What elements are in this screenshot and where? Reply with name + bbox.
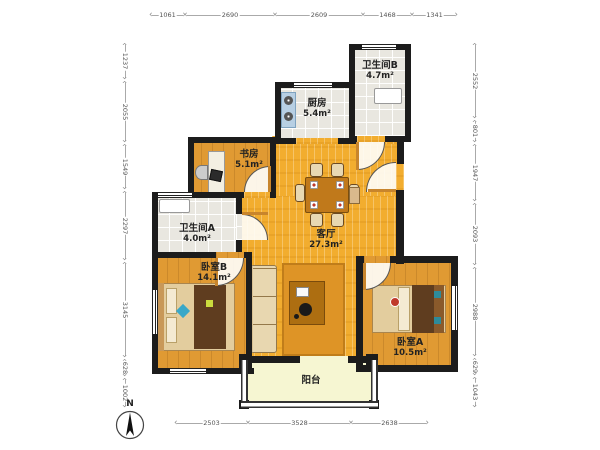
sofa xyxy=(248,265,277,353)
plate xyxy=(310,181,318,189)
window xyxy=(158,192,192,198)
window xyxy=(451,286,458,330)
wall-segment xyxy=(188,137,276,143)
decor-item xyxy=(390,297,400,307)
dim-label: 629 xyxy=(471,359,479,373)
dim-label: 1043 xyxy=(471,383,479,402)
headboard xyxy=(157,283,164,351)
cushion xyxy=(206,300,213,307)
dining-chair xyxy=(310,163,323,177)
dim-label: 2055 xyxy=(121,102,129,121)
sink xyxy=(374,88,402,104)
window xyxy=(362,44,396,50)
room-label-living-room: 客厅27.3m² xyxy=(291,229,361,251)
dim-label: 2297 xyxy=(121,216,129,235)
wall-segment xyxy=(188,137,194,198)
dim-label: 1947 xyxy=(471,163,479,182)
room-label-bedroom-a: 卧室A10.5m² xyxy=(375,337,445,359)
dim-label: 2503 xyxy=(202,419,221,427)
door-leaf xyxy=(363,263,366,290)
window xyxy=(170,368,206,374)
north-label: N xyxy=(112,399,148,409)
room-label-bathroom-b: 卫生间B4.7m² xyxy=(345,60,415,82)
kettle-small xyxy=(294,314,299,319)
door-opening xyxy=(364,256,390,263)
dim-label: 2093 xyxy=(471,225,479,244)
wall-segment xyxy=(405,44,411,142)
dim-label: 628 xyxy=(121,360,129,374)
door-leaf xyxy=(242,212,268,215)
wall-segment xyxy=(152,192,158,374)
room-label-study: 书房5.1m² xyxy=(214,149,284,171)
north-compass: N xyxy=(112,399,148,449)
door-opening xyxy=(244,192,270,198)
balcony-window xyxy=(371,360,378,406)
door-leaf xyxy=(368,189,396,192)
dim-label: 2638 xyxy=(380,419,399,427)
balcony-window xyxy=(241,401,378,408)
wall-segment xyxy=(356,256,363,372)
compass-icon xyxy=(114,409,146,441)
tray xyxy=(296,287,309,297)
dim-label: 2609 xyxy=(310,11,329,19)
dim-label: 1549 xyxy=(121,157,129,176)
pillow-accent xyxy=(434,291,441,298)
entry-cabinet xyxy=(349,187,360,204)
room-label-bedroom-b: 卧室B14.1m² xyxy=(179,262,249,284)
desk-chair xyxy=(195,165,208,180)
kettle xyxy=(299,303,312,316)
door-leaf xyxy=(356,142,359,170)
plate xyxy=(336,201,344,209)
wall-segment xyxy=(268,137,281,143)
floor-plan: 1061 2690 2609 1468 1341 2503 3528 2638 … xyxy=(0,0,600,450)
dim-label: 2690 xyxy=(221,11,240,19)
dining-chair xyxy=(331,213,344,227)
door-opening xyxy=(296,138,338,144)
dining-chair xyxy=(295,184,305,202)
dining-chair xyxy=(331,163,344,177)
dim-label: 801 xyxy=(471,124,479,138)
sink xyxy=(159,199,190,213)
blanket xyxy=(194,285,226,349)
dim-label: 3528 xyxy=(290,419,309,427)
room-label-bathroom-a: 卫生间A4.0m² xyxy=(162,223,232,245)
window xyxy=(294,82,332,88)
room-label-balcony: 阳台 xyxy=(276,375,346,386)
monitor xyxy=(209,169,223,182)
wall-segment xyxy=(396,190,404,264)
door-opening xyxy=(396,164,404,190)
plate xyxy=(336,181,344,189)
window xyxy=(152,290,158,334)
room-label-kitchen: 厨房5.4m² xyxy=(282,98,352,120)
wall-segment xyxy=(275,82,281,144)
pillow-accent xyxy=(434,317,441,324)
wall-segment xyxy=(349,44,355,142)
pillow xyxy=(398,287,410,331)
dim-label: 2988 xyxy=(471,302,479,321)
balcony-window xyxy=(241,360,248,406)
pillow xyxy=(166,317,177,343)
wall-segment xyxy=(397,142,404,166)
dim-label: 1468 xyxy=(378,11,397,19)
blanket xyxy=(412,285,434,333)
dim-label: 2552 xyxy=(471,71,479,90)
dim-label: 1237 xyxy=(121,52,129,71)
plate xyxy=(310,201,318,209)
dim-label: 1061 xyxy=(158,11,177,19)
dim-label: 1341 xyxy=(425,11,444,19)
dim-label: 3145 xyxy=(121,300,129,319)
door-opening xyxy=(300,356,348,363)
dining-chair xyxy=(310,213,323,227)
